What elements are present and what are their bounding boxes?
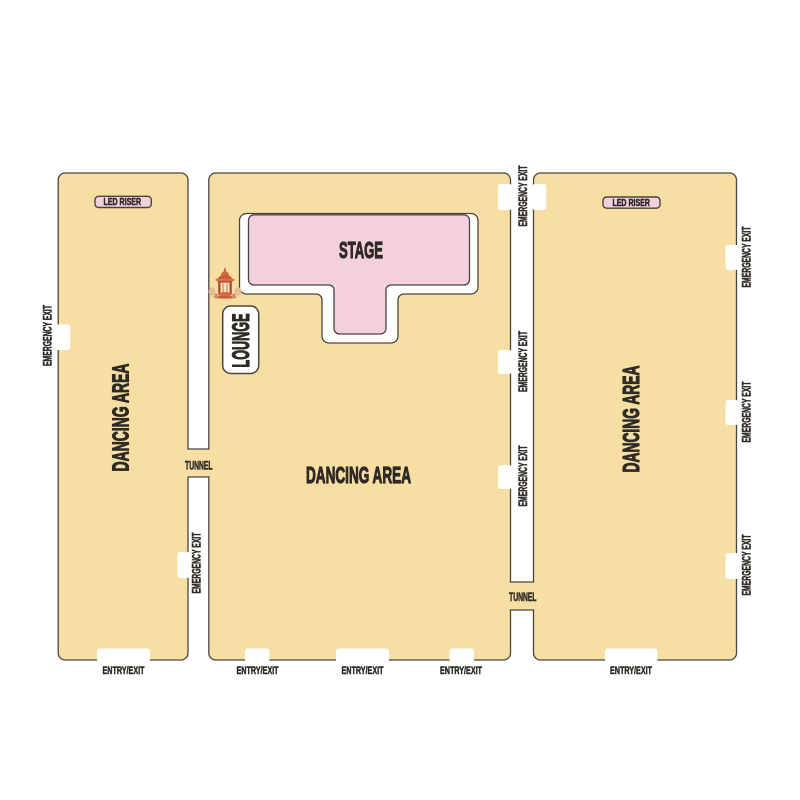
svg-text:ENTRY/EXIT: ENTRY/EXIT — [610, 665, 652, 677]
svg-text:DANCING AREA: DANCING AREA — [618, 366, 644, 473]
svg-text:TUNNEL: TUNNEL — [509, 592, 537, 604]
svg-text:LOUNGE: LOUNGE — [228, 314, 255, 368]
svg-text:EMERGENCY EXIT: EMERGENCY EXIT — [742, 382, 754, 443]
svg-text:EMERGENCY EXIT: EMERGENCY EXIT — [742, 535, 754, 596]
svg-text:ENTRY/EXIT: ENTRY/EXIT — [342, 665, 384, 677]
svg-text:EMERGENCY EXIT: EMERGENCY EXIT — [518, 166, 530, 227]
svg-text:LED RISER: LED RISER — [612, 198, 650, 209]
svg-text:EMERGENCY EXIT: EMERGENCY EXIT — [518, 331, 530, 392]
svg-text:EMERGENCY EXIT: EMERGENCY EXIT — [742, 227, 754, 288]
svg-text:EMERGENCY EXIT: EMERGENCY EXIT — [518, 446, 530, 507]
svg-text:LED RISER: LED RISER — [104, 197, 142, 208]
svg-text:ENTRY/EXIT: ENTRY/EXIT — [103, 665, 145, 677]
svg-text:ENTRY/EXIT: ENTRY/EXIT — [237, 665, 279, 677]
svg-text:ENTRY/EXIT: ENTRY/EXIT — [440, 665, 482, 677]
svg-text:STAGE: STAGE — [339, 237, 383, 263]
svg-text:TUNNEL: TUNNEL — [185, 460, 213, 472]
svg-text:EMERGENCY EXIT: EMERGENCY EXIT — [192, 533, 204, 594]
svg-text:EMERGENCY EXIT: EMERGENCY EXIT — [43, 305, 55, 366]
svg-text:DANCING AREA: DANCING AREA — [107, 364, 133, 472]
svg-text:DANCING AREA: DANCING AREA — [306, 462, 411, 488]
